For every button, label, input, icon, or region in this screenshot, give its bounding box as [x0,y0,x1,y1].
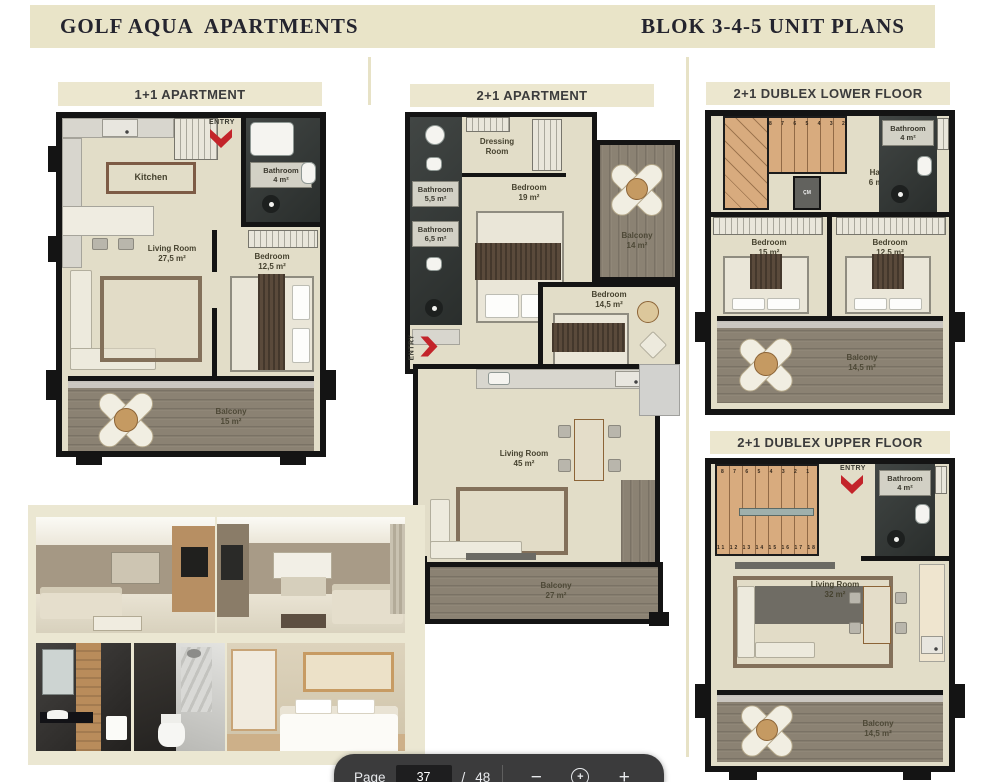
staircase: 8 7 6 5 4 3 2 1 11 12 13 14 15 16 17 18 [715,464,819,556]
dining-chair [558,459,571,472]
stove-icon [921,636,943,654]
dining-chair [608,425,621,438]
plan-2p1-canvas: Bathroom5,5 m² Bathroom6,5 m² DressingRo… [405,112,680,625]
washer-counter [412,329,460,345]
wall-pillar [649,612,669,626]
brochure-title: GOLF AQUA APARTMENTS [60,14,359,39]
bedroom-label: Bedroom12,5 m² [230,252,314,273]
bed [845,256,931,314]
shower-drain-icon [891,185,909,203]
toilet-icon [915,504,930,524]
plan-title-2p1: 2+1 APARTMENT [410,84,654,107]
shower-drain-icon [887,530,905,548]
page-number-input[interactable] [396,765,452,782]
dining-chair [849,622,861,634]
balcony-label: Balcony15 m² [186,407,276,428]
entry-arrow-icon [841,475,863,494]
photo-bedroom [227,643,405,751]
sink-icon [488,372,510,385]
kitchen-counter [62,138,82,268]
page-label: Page [354,770,386,782]
pouf [637,301,659,323]
balcony-zone: Balcony14,5 m² [717,690,943,762]
stair-numbers-bottom: 11 12 13 14 15 16 17 18 [717,545,817,551]
wall-pillar [76,455,102,465]
lounge-chairs [737,700,797,760]
dining-chair [558,425,571,438]
pdf-toolbar: Page / 48 − + + [334,754,664,782]
dining-table [863,586,891,644]
balcony-label: Balcony14,5 m² [833,719,923,740]
balcony-label: Balcony14,5 m² [817,353,907,374]
toilet-icon [426,257,442,271]
partition-wall [462,173,566,177]
sink-icon [425,125,445,145]
bedroom1-label: Bedroom19 m² [486,183,572,204]
bedroom1-wardrobe [713,217,823,235]
bathrooms-zone: Bathroom5,5 m² Bathroom6,5 m² [410,117,462,325]
dining-chair [608,459,621,472]
page-total: 48 [475,770,490,782]
lounge-chairs [607,159,667,219]
wall-pillar [729,770,757,780]
zoom-in-icon: + [619,768,630,782]
stair-numbers: 8 7 6 5 4 3 2 1 [717,469,817,475]
bathtub-icon [250,122,294,156]
hall-closet [935,466,947,494]
wall-pillar [903,770,931,780]
shower-drain-icon [262,195,280,213]
sofa [755,642,815,658]
wall-pillar [280,455,306,465]
toilet-icon [917,156,932,176]
wall-pillar [953,684,965,718]
interior-photos-panel [28,505,425,765]
terrace-wing [621,480,655,564]
toolbar-divider [502,765,503,782]
wall-pillar [48,236,58,262]
plan-title-dublex-lower-text: 2+1 DUBLEX LOWER FLOOR [733,86,922,101]
wall-pillar [695,312,707,342]
partition-wall [861,556,949,561]
balcony1-zone: Balcony14 m² [595,140,680,282]
toilet-icon [301,162,316,184]
sofa [737,586,755,658]
stair-numbers: 8 7 6 5 4 3 2 1 [769,121,845,127]
tv-unit [735,562,835,569]
dining-chair [849,592,861,604]
bathroom1-label: Bathroom5,5 m² [412,181,459,207]
stair-landing [739,508,814,516]
column-divider [368,57,371,105]
armchair [639,331,667,359]
dressing-wardrobe [532,119,562,171]
balcony1-label: Balcony14 m² [608,231,666,252]
dining-chair [895,592,907,604]
wall-pillar [695,684,707,718]
balcony-zone: Balcony15 m² [68,376,314,451]
bedroom-wardrobe [248,230,318,248]
stove-icon [102,119,138,137]
plan-dublex-upper-canvas: 8 7 6 5 4 3 2 1 11 12 13 14 15 16 17 18 … [705,458,955,772]
service-shaft [639,364,680,416]
zoom-reset-icon: + [571,768,589,782]
bathroom-label: Bathroom4 m² [882,120,934,146]
bathroom-zone: Bathroom4 m² [246,118,320,222]
plan-title-dublex-lower: 2+1 DUBLEX LOWER FLOOR [706,82,950,105]
zoom-out-icon: − [531,768,542,782]
bed [230,276,314,372]
plan-title-1p1: 1+1 APARTMENT [58,82,322,106]
plan-title-2p1-text: 2+1 APARTMENT [476,88,587,103]
toilet-icon [426,157,442,171]
balcony2-zone: Balcony27 m² [425,562,663,624]
kitchen-island [62,206,154,236]
photo-bathroom-vanity [36,643,131,751]
balcony2-label: Balcony27 m² [516,581,596,602]
kitchen-label: Kitchen [106,162,196,194]
staircase: 8 7 6 5 4 3 2 1 [767,116,847,174]
zoom-in-button[interactable]: + [605,762,643,782]
tv-unit [466,553,536,560]
plan-title-1p1-text: 1+1 APARTMENT [134,87,245,102]
shower-drain-icon [425,299,443,317]
photo-bathroom-shower [134,643,225,751]
photo-living-room-1 [36,517,215,633]
hall-closet [937,118,949,150]
bathroom-label: Bathroom4 m² [879,470,931,496]
rug [100,276,202,362]
zoom-reset-button[interactable]: + [561,762,599,782]
plan-1p1-canvas: ENTRY Bathroom4 m² Kitchen Living Room27… [56,112,326,457]
wall-pillar [324,370,336,400]
block-plans-title: BLOK 3-4-5 UNIT PLANS [641,14,905,39]
entry-label: ENTRY [827,465,879,472]
partition-wall [241,222,320,227]
column-divider [686,57,689,757]
photo-living-room-2 [217,517,405,633]
hall-wardrobe [466,117,510,132]
lounge-chairs [735,333,797,395]
partition-wall [212,308,217,376]
plan-title-dublex-upper-text: 2+1 DUBLEX UPPER FLOOR [737,435,922,450]
entry-label: ENTRY [409,331,416,365]
partition-wall [241,118,246,222]
bathroom-zone: Bathroom4 m² [875,464,935,556]
partition-wall [827,212,832,316]
bed [723,256,809,314]
pdf-page: GOLF AQUA APARTMENTS BLOK 3-4-5 UNIT PLA… [0,0,994,782]
bathroom2-label: Bathroom6,5 m² [412,221,459,247]
wall-pillar [953,312,965,342]
wall-pillar [48,146,58,172]
dining-chair [895,622,907,634]
plan-title-dublex-upper: 2+1 DUBLEX UPPER FLOOR [710,431,950,454]
header-bar: GOLF AQUA APARTMENTS BLOK 3-4-5 UNIT PLA… [30,5,935,48]
living-room-label: Living Room27,5 m² [120,244,224,265]
page-separator: / [462,770,466,782]
staircase [723,116,769,210]
dining-table [574,419,604,481]
zoom-out-button[interactable]: − [517,762,555,782]
stool [92,238,108,250]
lounge-chairs [94,389,158,451]
closet-cm: ÇM [793,176,821,210]
plan-dublex-lower-canvas: 8 7 6 5 4 3 2 1 ÇM Hall6 m² Bathroom4 m²… [705,110,955,415]
wall-pillar [46,370,58,400]
bathroom-zone: Bathroom4 m² [879,116,937,212]
bedroom2-wardrobe [836,217,946,235]
dressing-room-label: DressingRoom [466,137,528,158]
balcony-zone: Balcony14,5 m² [717,316,943,403]
